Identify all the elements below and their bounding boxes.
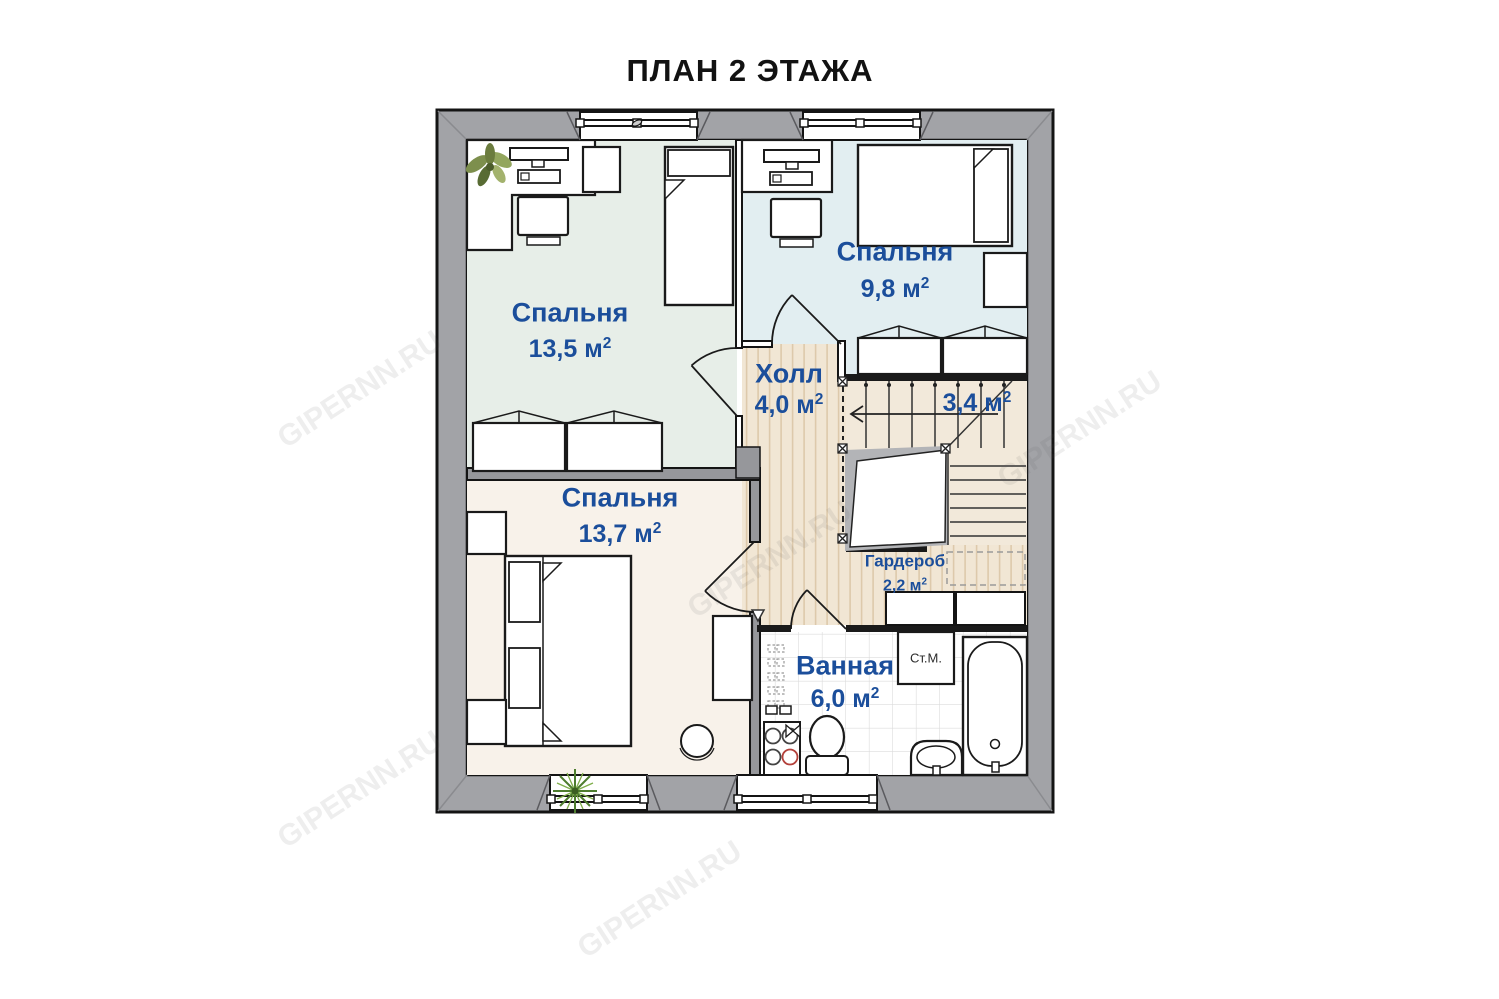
stairs-area: 3,4 м2	[943, 390, 1012, 416]
wall-bedroom3-hall-upper	[750, 480, 760, 542]
bed-1-pillow	[668, 150, 730, 176]
bathtub-drain	[991, 740, 1000, 749]
wall-bathroom-top-left	[757, 625, 791, 632]
chair-2	[771, 199, 821, 237]
stair-landing	[850, 450, 946, 547]
wardrobe-2b	[943, 338, 1027, 374]
monitor-2	[764, 150, 819, 162]
chair-1	[518, 197, 568, 235]
floor-plan-page: ПЛАН 2 ЭТАЖА Спальня 13,5 м2 Спальня 9,8…	[0, 0, 1499, 999]
wardrobe-2a	[858, 338, 941, 374]
side-table-1	[583, 147, 620, 192]
wall-junction-block	[736, 447, 760, 478]
keyboard-2-key	[773, 175, 781, 182]
wardrobe-label: Гардероб	[865, 553, 945, 570]
page-title: ПЛАН 2 ЭТАЖА	[626, 53, 873, 89]
window-bottom-right	[724, 775, 890, 810]
nightstand-3a	[467, 512, 506, 554]
sink-basin	[917, 746, 955, 768]
sink-faucet	[933, 766, 940, 775]
valve-a	[766, 706, 777, 714]
bed-3-pillow-a	[509, 562, 540, 622]
toilet-bowl	[810, 716, 844, 758]
toilet-tank	[806, 756, 848, 775]
window-top-left	[567, 112, 710, 140]
wall-hall-bedroom2	[742, 341, 772, 347]
bedroom1-label: Спальня	[512, 300, 629, 327]
valve-b	[780, 706, 791, 714]
floor-plan-drawing	[0, 0, 1499, 999]
hall-area: 4,0 м2	[755, 392, 824, 418]
monitor-1-stand	[532, 160, 544, 167]
bedroom2-label: Спальня	[837, 239, 954, 266]
bedroom2-area: 9,8 м2	[861, 276, 930, 302]
wardrobe-1b	[567, 423, 662, 471]
bathroom-label: Ванная	[796, 653, 894, 680]
window-bottom-left	[537, 775, 660, 810]
wardrobe-3	[713, 616, 752, 700]
chair-2-base	[780, 239, 813, 247]
wardrobe-1a	[473, 423, 565, 471]
wall-stub-door2	[838, 341, 845, 381]
bathroom-area: 6,0 м2	[811, 686, 880, 712]
bedroom3-area: 13,7 м2	[579, 521, 662, 547]
bathtub-faucet	[992, 762, 999, 772]
bed-3-pillow-b	[509, 648, 540, 708]
nightstand-2	[984, 253, 1027, 307]
bedroom1-area: 13,5 м2	[529, 336, 612, 362]
hall-label: Холл	[755, 361, 823, 388]
monitor-2-stand	[786, 162, 798, 169]
chair-1-base	[527, 237, 560, 245]
window-top-right	[790, 112, 933, 140]
washing-machine-label: Ст.М.	[910, 651, 942, 666]
wardrobe-area: 2,2 м2	[883, 577, 927, 594]
wardrobe-cabinet-1	[886, 592, 954, 625]
keyboard-1-key	[521, 173, 529, 180]
monitor-1	[510, 148, 568, 160]
pouf-3	[681, 725, 713, 757]
nightstand-3b	[467, 700, 506, 744]
wardrobe-cabinet-2	[956, 592, 1025, 625]
bedroom3-label: Спальня	[562, 485, 679, 512]
